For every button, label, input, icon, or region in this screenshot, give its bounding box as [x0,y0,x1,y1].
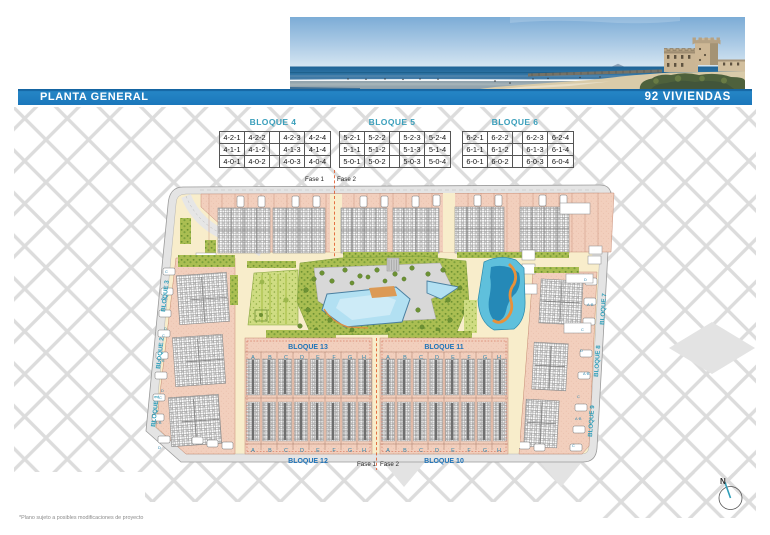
svg-text:A·B: A·B [575,416,582,421]
svg-text:C: C [581,327,584,332]
svg-text:D: D [300,448,304,454]
svg-text:H: H [362,355,366,361]
svg-text:C: C [284,448,288,454]
svg-text:G: G [348,448,352,454]
svg-text:H: H [497,355,501,361]
svg-text:H: H [362,448,366,454]
svg-text:C: C [577,394,580,399]
svg-text:N: N [720,477,726,486]
svg-text:D: D [161,388,164,393]
svg-text:H: H [497,448,501,454]
svg-text:A: A [251,355,255,361]
svg-text:D: D [435,355,439,361]
svg-text:C: C [572,443,575,448]
svg-text:D: D [300,355,304,361]
svg-text:A: A [251,448,255,454]
svg-text:A·B: A·B [583,371,590,376]
svg-text:A: A [386,448,390,454]
svg-text:BLOQUE 10: BLOQUE 10 [424,458,464,465]
svg-text:G: G [348,355,352,361]
svg-text:A·B: A·B [587,302,594,307]
svg-text:D: D [435,448,439,454]
svg-text:C: C [284,355,288,361]
svg-text:G: G [483,448,487,454]
svg-text:E: E [451,355,455,361]
svg-text:D: D [580,348,583,353]
svg-text:E: E [316,355,320,361]
svg-text:C: C [165,269,168,274]
svg-text:B: B [268,448,272,454]
svg-text:B: B [403,355,407,361]
svg-text:D: D [164,326,167,331]
svg-text:B: B [403,448,407,454]
svg-text:C: C [419,355,423,361]
svg-text:A: A [386,355,390,361]
svg-text:D: D [158,445,161,450]
svg-text:B: B [268,355,272,361]
svg-text:BLOQUE 11: BLOQUE 11 [424,344,463,351]
svg-text:BLOQUE 13: BLOQUE 13 [288,344,328,351]
svg-text:E: E [316,448,320,454]
svg-text:G: G [483,355,487,361]
svg-text:C: C [162,333,165,338]
svg-text:BLOQUE 12: BLOQUE 12 [288,458,328,465]
svg-text:C: C [419,448,423,454]
svg-text:D: D [584,277,587,282]
svg-text:E: E [451,448,455,454]
